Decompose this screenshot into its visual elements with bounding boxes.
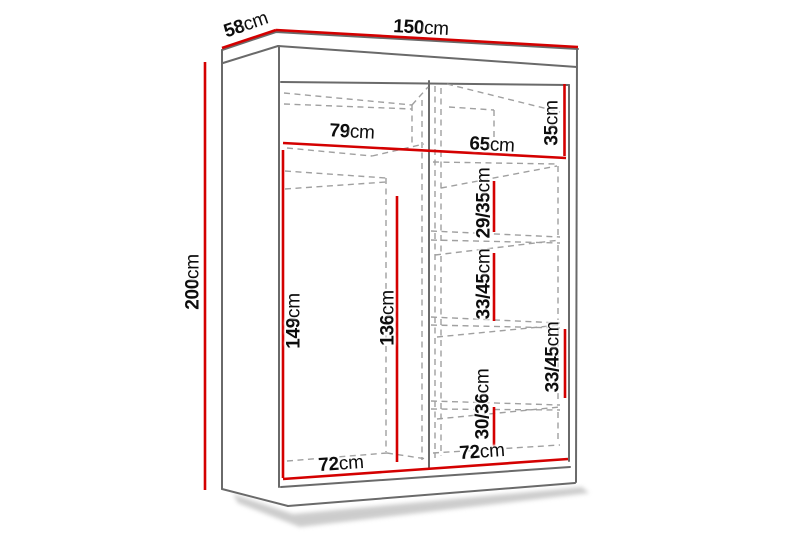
dim-label-shelf-space-4: 30/36cm (474, 369, 493, 440)
dim-label-shelf-space-1: 29/35cm (475, 168, 494, 239)
cabinet-body (222, 32, 578, 506)
dim-label-right-section-width: 65cm (469, 134, 515, 155)
dim-label-left-bottom-width: 72cm (318, 453, 364, 475)
wardrobe-dimension-diagram: 58cm 150cm 200cm 79cm 65cm 35cm 149cm 13… (0, 0, 800, 533)
dim-label-width: 150cm (393, 17, 450, 39)
dim-label-top-shelf-height: 35cm (543, 100, 562, 145)
dim-label-shelf-space-3: 33/45cm (544, 322, 563, 393)
dim-label-left-interior-back-height: 136cm (379, 290, 398, 346)
dim-label-shelf-space-2: 33/45cm (475, 249, 494, 320)
dim-label-left-interior-height: 149cm (285, 293, 304, 349)
wardrobe-drawing (0, 0, 800, 533)
dim-label-right-bottom-width: 72cm (459, 441, 505, 463)
dim-label-left-section-width: 79cm (329, 121, 375, 142)
dim-label-height: 200cm (184, 254, 203, 310)
